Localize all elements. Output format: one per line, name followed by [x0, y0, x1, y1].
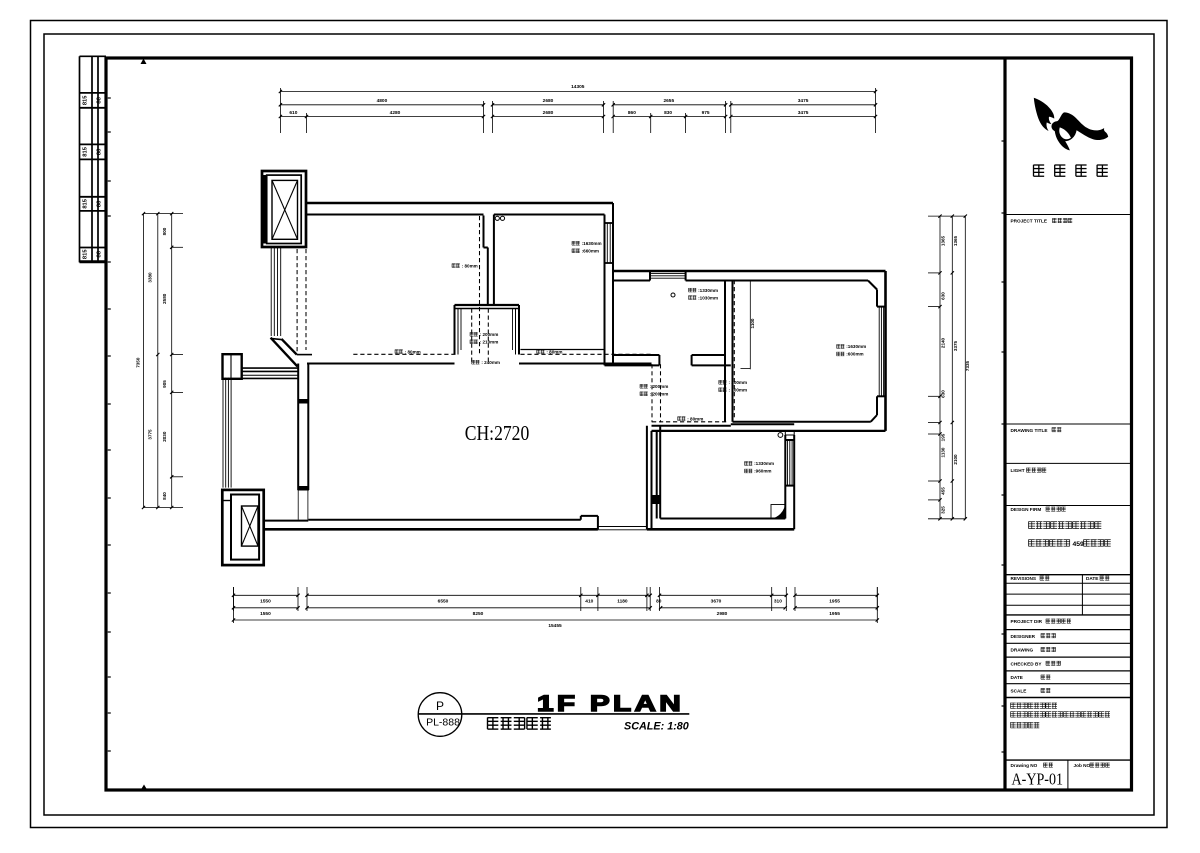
svg-text:: 80mm: : 80mm — [405, 349, 421, 354]
svg-text:DATE: DATE — [1086, 576, 1098, 581]
svg-text::1030mm: :1030mm — [698, 295, 718, 300]
svg-text:DRAWING: DRAWING — [1011, 648, 1034, 653]
svg-text:905: 905 — [162, 380, 167, 388]
svg-text:: 240mm: : 240mm — [481, 360, 500, 365]
svg-text:630: 630 — [941, 390, 946, 398]
svg-text:7335: 7335 — [965, 360, 970, 371]
svg-text:A-YP-01: A-YP-01 — [1012, 770, 1064, 789]
svg-text:2680: 2680 — [543, 98, 554, 104]
svg-text:1550: 1550 — [260, 598, 271, 604]
svg-text:PROJECT DIR: PROJECT DIR — [1011, 619, 1043, 624]
svg-text:: 80mm: : 80mm — [687, 416, 703, 421]
svg-text:88: 88 — [97, 250, 103, 257]
svg-text:3475: 3475 — [798, 98, 809, 104]
svg-text:1180: 1180 — [617, 598, 628, 604]
svg-text:410: 410 — [585, 598, 593, 604]
svg-text:: 200mm: : 200mm — [480, 332, 499, 337]
svg-text:815: 815 — [83, 249, 89, 259]
svg-text::960mm: :960mm — [754, 469, 771, 474]
svg-text:310: 310 — [774, 598, 782, 604]
svg-text:800: 800 — [162, 227, 167, 235]
svg-text::600mm: :600mm — [846, 352, 863, 357]
svg-text:CHECKED BY: CHECKED BY — [1011, 661, 1043, 666]
svg-text:Job NO: Job NO — [1074, 763, 1091, 768]
svg-text:8250: 8250 — [473, 611, 484, 617]
svg-text:4800: 4800 — [377, 98, 388, 104]
svg-text:975: 975 — [702, 110, 710, 116]
svg-text:1550: 1550 — [260, 611, 271, 617]
svg-text:15455: 15455 — [548, 623, 562, 629]
svg-text:459: 459 — [1073, 541, 1085, 548]
svg-text:: 80mm: : 80mm — [462, 263, 478, 268]
svg-text:1F PLAN: 1F PLAN — [537, 691, 684, 716]
svg-text::1330mm: :1330mm — [698, 288, 718, 293]
svg-text:1100: 1100 — [750, 318, 755, 328]
svg-text:P: P — [436, 699, 444, 713]
svg-text:Drawing NO: Drawing NO — [1011, 763, 1038, 768]
svg-text:455: 455 — [941, 487, 946, 495]
svg-text::660mm: :660mm — [582, 249, 599, 254]
svg-text:2680: 2680 — [543, 110, 554, 116]
svg-text::1630mm: :1630mm — [582, 241, 602, 246]
svg-text:2100: 2100 — [953, 454, 958, 465]
svg-text:LIGHT: LIGHT — [1011, 468, 1025, 473]
svg-text:3475: 3475 — [798, 110, 809, 116]
svg-text:PROJECT TITLE: PROJECT TITLE — [1011, 219, 1047, 224]
svg-text:7350: 7350 — [136, 357, 141, 368]
svg-text:1365: 1365 — [953, 235, 958, 246]
svg-text:88: 88 — [97, 96, 103, 103]
svg-text:: 80mm: : 80mm — [546, 349, 562, 354]
svg-text:DATE: DATE — [1011, 675, 1023, 680]
svg-text:2580: 2580 — [162, 293, 167, 304]
svg-text:: 200mm: : 200mm — [650, 384, 669, 389]
svg-text:2140: 2140 — [941, 337, 946, 348]
svg-text:3775: 3775 — [148, 429, 153, 440]
svg-text:: 200mm: : 200mm — [728, 380, 747, 385]
svg-text:DESIGNER: DESIGNER — [1011, 634, 1036, 639]
svg-text:195: 195 — [941, 433, 946, 441]
svg-text:88: 88 — [97, 148, 103, 155]
svg-text:1955: 1955 — [829, 611, 840, 617]
svg-text:88: 88 — [97, 200, 103, 207]
svg-text:4280: 4280 — [390, 110, 401, 116]
svg-text::1330mm: :1330mm — [754, 461, 774, 466]
svg-text:DRAWING TITLE: DRAWING TITLE — [1011, 428, 1048, 433]
svg-text:815: 815 — [83, 146, 89, 156]
svg-text:: 100mm: : 100mm — [728, 388, 747, 393]
svg-text:DESIGN FIRM: DESIGN FIRM — [1011, 507, 1042, 512]
svg-text:14305: 14305 — [571, 84, 585, 90]
svg-text:: 210mm: : 210mm — [480, 340, 499, 345]
svg-text:CH:2720: CH:2720 — [465, 421, 530, 445]
svg-text:6550: 6550 — [438, 598, 449, 604]
svg-text:80: 80 — [656, 598, 662, 604]
svg-text:860: 860 — [628, 110, 636, 116]
svg-text:3670: 3670 — [711, 598, 722, 604]
svg-text:: 200mm: : 200mm — [650, 392, 669, 397]
svg-text:2655: 2655 — [663, 98, 674, 104]
svg-text:610: 610 — [289, 110, 297, 116]
svg-text:815: 815 — [83, 198, 89, 208]
svg-text:325: 325 — [941, 506, 946, 514]
svg-text::1630mm: :1630mm — [846, 344, 866, 349]
svg-text:1955: 1955 — [829, 598, 840, 604]
svg-text:3375: 3375 — [953, 340, 958, 351]
svg-text:2980: 2980 — [717, 611, 728, 617]
svg-text:815: 815 — [83, 95, 89, 105]
svg-text:2030: 2030 — [162, 431, 167, 442]
svg-text:830: 830 — [664, 110, 672, 116]
svg-text:SCALE: SCALE — [1011, 689, 1027, 694]
svg-text:1365: 1365 — [941, 235, 946, 246]
svg-text:REVISIONS: REVISIONS — [1011, 576, 1037, 581]
svg-text:1130: 1130 — [941, 447, 946, 457]
svg-text:SCALE: 1:80: SCALE: 1:80 — [624, 721, 689, 733]
svg-text:840: 840 — [162, 492, 167, 500]
svg-text:630: 630 — [941, 292, 946, 300]
svg-text:PL-888: PL-888 — [426, 717, 460, 729]
svg-text:3380: 3380 — [148, 272, 153, 283]
